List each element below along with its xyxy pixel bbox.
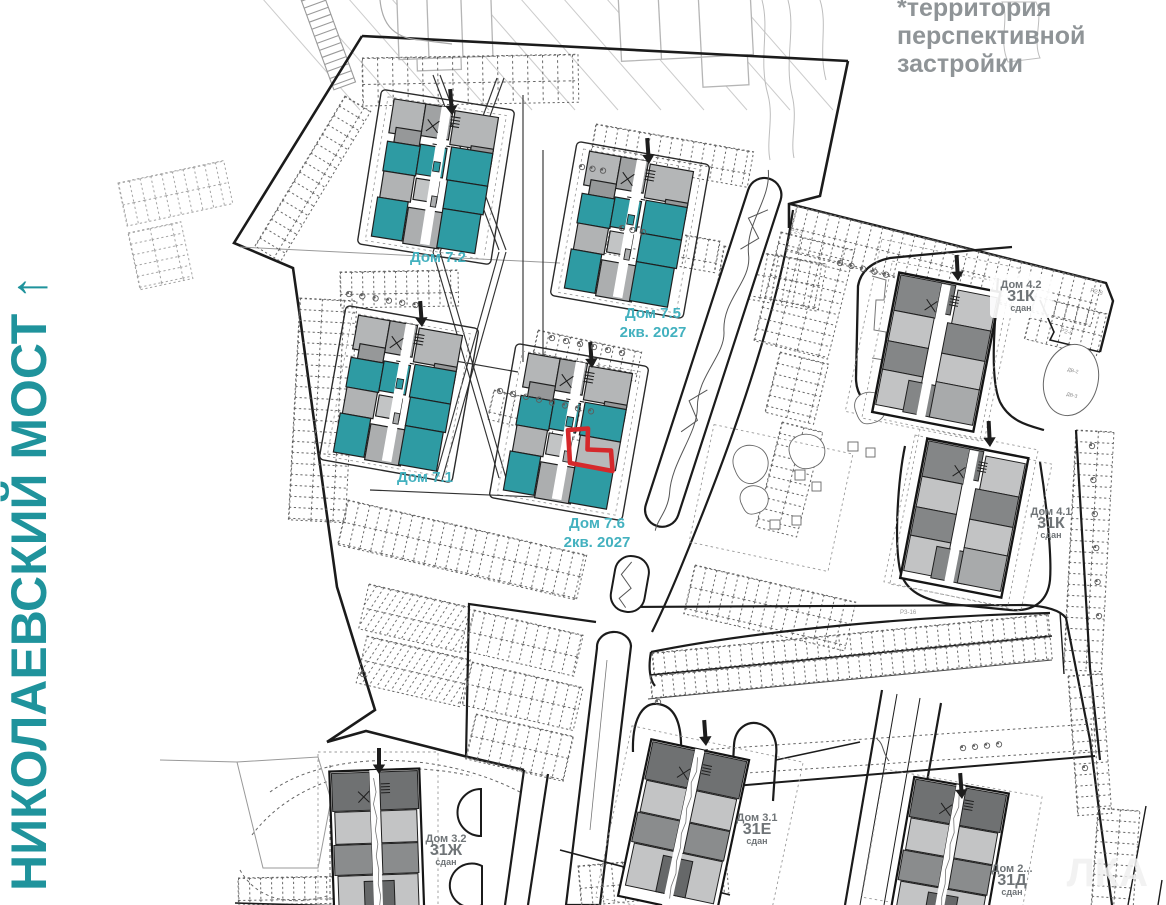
svg-text:сдан: сдан xyxy=(1010,303,1031,313)
svg-text:2кв. 2027: 2кв. 2027 xyxy=(564,534,631,551)
svg-text:*территория: *территория xyxy=(897,0,1051,22)
svg-text:Дом 7.5: Дом 7.5 xyxy=(625,305,681,322)
svg-text:РЗ-16: РЗ-16 xyxy=(900,610,917,616)
svg-text:застройки: застройки xyxy=(897,50,1023,78)
svg-text:сдан: сдан xyxy=(435,857,456,867)
svg-text:Дом 7.1: Дом 7.1 xyxy=(397,469,453,486)
svg-text:сдан: сдан xyxy=(1001,887,1022,897)
svg-text:сдан: сдан xyxy=(746,836,767,846)
svg-text:сдан: сдан xyxy=(1040,530,1061,540)
svg-text:перспективной: перспективной xyxy=(897,22,1085,50)
svg-text:НИКОЛАЕВСКИЙ МОСТ ↑: НИКОЛАЕВСКИЙ МОСТ ↑ xyxy=(0,275,57,891)
svg-text:2кв. 2027: 2кв. 2027 xyxy=(620,324,687,341)
svg-text:Дом 7.6: Дом 7.6 xyxy=(569,515,625,532)
svg-text:Дом 7.2: Дом 7.2 xyxy=(410,249,466,266)
svg-text:ЛКА: ЛКА xyxy=(1067,851,1148,895)
